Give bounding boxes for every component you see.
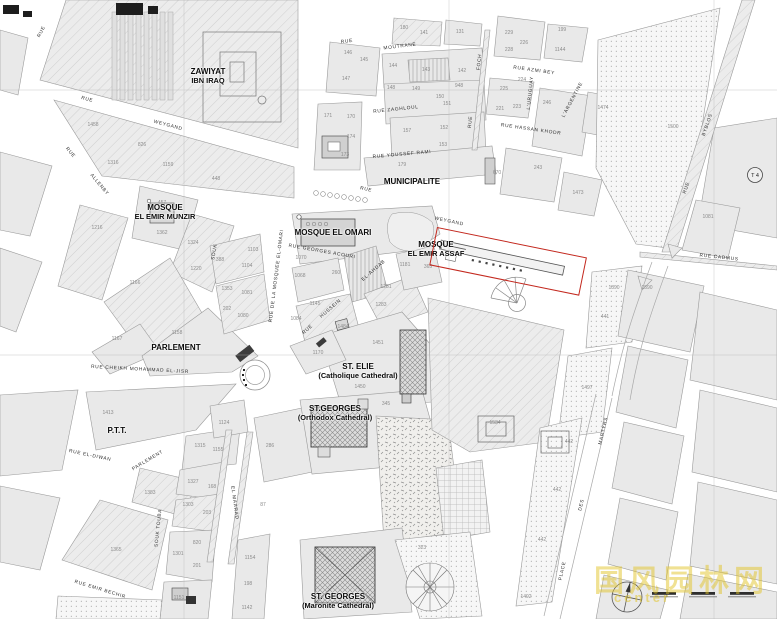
parcel-number: 144	[389, 63, 397, 69]
parcel-number: 1316	[107, 160, 118, 166]
parcel-number: 151	[443, 101, 451, 107]
parcel-number: 223	[513, 104, 521, 110]
parcel-number: 201	[193, 563, 201, 569]
parcel-number: 198	[244, 581, 252, 587]
parcel-number: 1590	[641, 285, 652, 291]
parcel-number: 1500	[667, 124, 678, 130]
landmark-label: ST. GEORGES(Maronite Cathedral)	[302, 592, 374, 610]
parcel-number: 1181	[400, 262, 411, 268]
parcel-number: 448	[212, 176, 220, 182]
parcel-number: 1450	[354, 384, 365, 390]
parcel-number: 323	[418, 545, 426, 551]
etoile-roundabout	[240, 360, 270, 390]
parcel-number: 1103	[248, 247, 259, 253]
parcel-number: 388	[216, 257, 224, 263]
parcel-number: 1474	[597, 105, 608, 111]
parcel-number: 1458	[87, 122, 98, 128]
parcel-number: 146	[344, 50, 352, 56]
t4-label: T 4	[751, 173, 759, 179]
parcel-number: 141	[420, 30, 428, 36]
landmark-label: ZAWIYATIBN IRAQ	[191, 67, 226, 85]
parcel-number: 1124	[219, 420, 230, 426]
parcel-number: 442	[538, 537, 546, 543]
landmark-label: MOSQUE EL OMARI	[295, 228, 372, 238]
parcel-number: 1145	[310, 301, 321, 307]
parcel-number: 243	[534, 165, 542, 171]
parcel-number: 149	[412, 86, 420, 92]
parcel-number: 202	[223, 306, 231, 312]
parcel-number: 1324	[187, 240, 198, 246]
parcel-number: 826	[138, 142, 146, 148]
parcel-number: 670	[493, 170, 501, 176]
parcel-number: 1220	[190, 266, 201, 272]
parcel-number: 152	[440, 125, 448, 131]
parcel-number: 143	[422, 67, 430, 73]
parcel-number: 1151	[174, 595, 185, 601]
parcel-number: 150	[436, 94, 444, 100]
parcel-number: 1081	[702, 214, 713, 220]
city-plan-map: T 4 国风园林网 center ZAWIYATIBN IRAQMOSQUEEL…	[0, 0, 777, 619]
parcel-number: 1303	[182, 502, 193, 508]
parcel-number: 1144	[555, 47, 566, 53]
parcel-number: 1155	[213, 447, 224, 453]
parcel-number: 170	[347, 114, 355, 120]
parcel-number: 260	[332, 270, 340, 276]
parcel-number: 1301	[172, 551, 183, 557]
parcel-number: 1068	[294, 273, 305, 279]
parcel-number: 1365	[110, 547, 121, 553]
parcel-number: 1283	[375, 302, 386, 308]
parcel-number: 246	[543, 100, 551, 106]
parcel-number: 1327	[187, 479, 198, 485]
parcel-number: 174	[347, 134, 355, 140]
landmark-label: P.T.T.	[108, 426, 127, 436]
parcel-number: 1534	[489, 420, 500, 426]
landmark-label: MUNICIPALITE	[384, 177, 440, 187]
parcel-number: 441	[601, 314, 609, 320]
parcel-number: 148	[387, 85, 395, 91]
parcel-number: 1167	[112, 336, 123, 342]
parcel-number: 1890	[608, 285, 619, 291]
parcel-number: 1473	[572, 190, 583, 196]
parcel-number: 345	[382, 401, 390, 407]
parcel-number: 1383	[144, 490, 155, 496]
parcel-number: 180	[400, 25, 408, 31]
parcel-number: 1154	[245, 555, 256, 561]
landmark-label: PARLEMENT	[151, 343, 200, 353]
parcel-number: 1170	[313, 350, 324, 356]
parcel-number: 1084	[290, 316, 301, 322]
dome-structure	[406, 563, 454, 611]
parcel-number: 1413	[102, 410, 113, 416]
landmark-label: MOSQUEEL EMIR MUNZIR	[135, 203, 196, 221]
parcel-number: 1070	[295, 255, 306, 261]
parcel-number: 1281	[380, 284, 391, 290]
parcel-number: 1497	[581, 385, 592, 391]
parcel-number: 442	[553, 487, 561, 493]
parcel-number: 221	[496, 106, 504, 112]
landmark-label: ST. ELIE(Catholique Cathedral)	[318, 362, 397, 380]
landmark-label: ST.GEORGES(Orthodox Cathedral)	[298, 404, 372, 422]
parcel-number: 1362	[156, 230, 167, 236]
parcel-number: 1104	[242, 263, 253, 269]
parcel-number: 1158	[172, 330, 183, 336]
parcel-number: 157	[403, 128, 411, 134]
parcel-number: 1451	[372, 340, 383, 346]
parcel-number: 87	[260, 502, 266, 508]
parcel-number: 442	[565, 439, 573, 445]
parcel-number: 1142	[242, 605, 253, 611]
parcel-number: 1159	[163, 162, 174, 168]
parcel-number: 1353	[221, 286, 232, 292]
map-drawing: T 4	[0, 0, 777, 619]
weygand-trees	[314, 191, 368, 203]
parcel-number: 1166	[130, 280, 141, 286]
parcel-number: 145	[360, 57, 368, 63]
t4-marker: T 4	[748, 168, 763, 183]
parcel-number: 229	[505, 30, 513, 36]
parcel-number: 168	[208, 484, 216, 490]
parcel-number: 1315	[194, 443, 205, 449]
parcel-number: 1080	[237, 313, 248, 319]
parcel-number: 226	[520, 40, 528, 46]
parcel-number: 224	[518, 77, 526, 83]
parcel-number: 171	[324, 113, 332, 119]
parcel-number: 173	[341, 152, 349, 158]
parcel-number: 147	[342, 76, 350, 82]
parcel-number: 1216	[91, 225, 102, 231]
parcel-number: 1081	[241, 290, 252, 296]
parcel-number: 203	[203, 510, 211, 516]
parcel-number: 153	[439, 142, 447, 148]
parcel-number: 131	[456, 29, 464, 35]
parcel-number: 228	[505, 47, 513, 53]
parcel-number: 1492	[520, 594, 531, 600]
parcel-number: 820	[193, 540, 201, 546]
parcel-number: 142	[458, 68, 466, 74]
parcel-number: 286	[266, 443, 274, 449]
parcel-number: 199	[558, 27, 566, 33]
parcel-number: 225	[500, 86, 508, 92]
parcel-number: 1484	[337, 324, 348, 330]
parcel-number: 179	[398, 162, 406, 168]
parcel-number: 948	[455, 83, 463, 89]
